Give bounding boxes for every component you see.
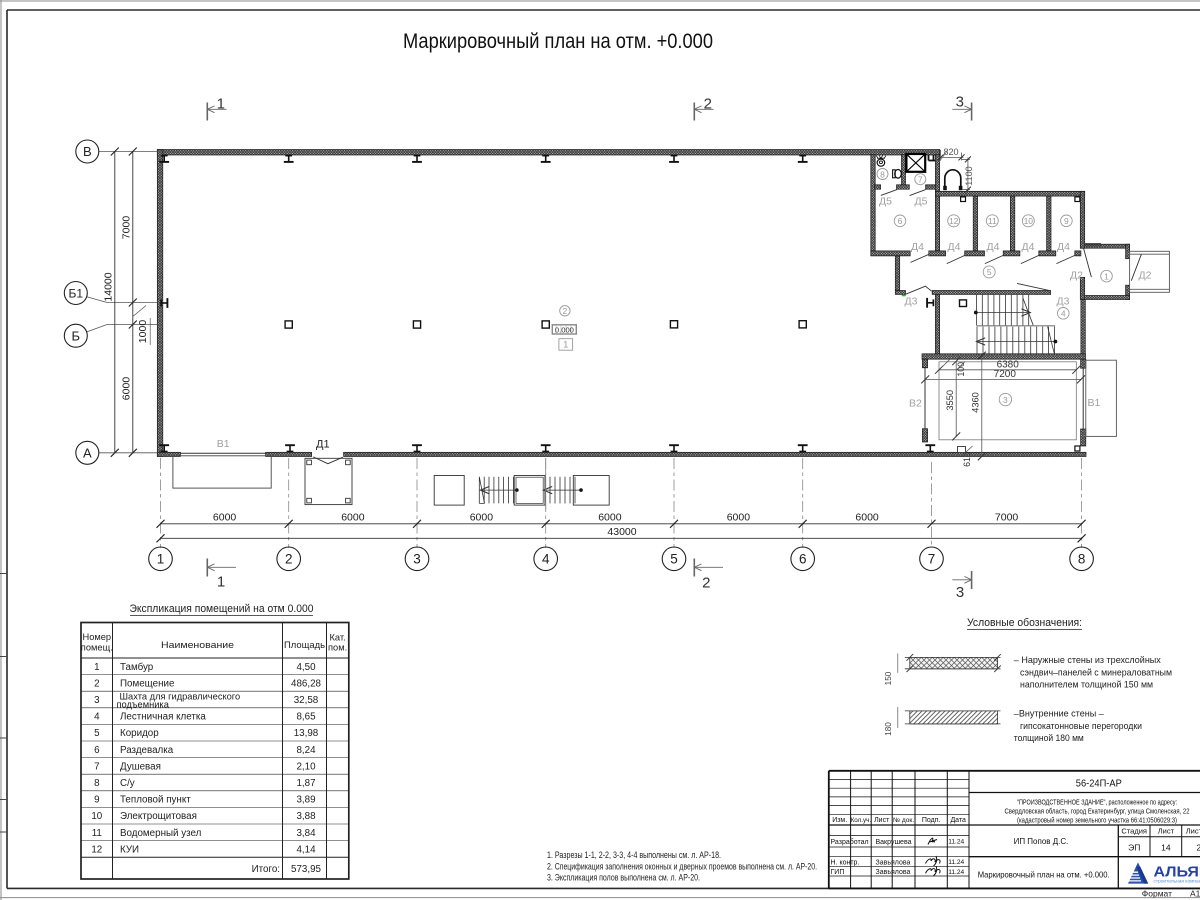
svg-text:ЭП: ЭП — [1128, 842, 1140, 852]
svg-text:4,50: 4,50 — [296, 662, 316, 673]
svg-text:3,89: 3,89 — [296, 795, 315, 806]
svg-text:2: 2 — [94, 678, 99, 689]
svg-text:13,98: 13,98 — [294, 728, 319, 739]
svg-text:2: 2 — [702, 575, 710, 592]
svg-text:гипсокатонновые перегородки: гипсокатонновые перегородки — [1020, 720, 1142, 731]
svg-text:6: 6 — [94, 745, 100, 756]
svg-text:Душевая: Душевая — [120, 761, 161, 772]
svg-text:1,87: 1,87 — [296, 778, 315, 789]
svg-text:8: 8 — [1078, 551, 1086, 566]
svg-text:9: 9 — [1064, 216, 1069, 226]
svg-text:помещ.: помещ. — [81, 643, 113, 653]
svg-text:1: 1 — [1104, 271, 1109, 281]
svg-text:Д4: Д4 — [987, 241, 1000, 253]
svg-text:180: 180 — [884, 722, 893, 736]
svg-text:2: 2 — [563, 306, 568, 316]
svg-text:Помещение: Помещение — [120, 678, 175, 689]
svg-text:Маркировочный план на отм. +0.: Маркировочный план на отм. +0.000 — [403, 30, 713, 53]
svg-text:7200: 7200 — [994, 369, 1017, 380]
svg-text:ГИП: ГИП — [831, 869, 845, 876]
svg-text:4: 4 — [1061, 309, 1066, 319]
svg-text:12: 12 — [91, 844, 102, 855]
svg-text:Экспликация помещений на отм 0: Экспликация помещений на отм 0.000 — [130, 603, 314, 615]
svg-text:5: 5 — [987, 267, 992, 277]
svg-text:Тепловой пункт: Тепловой пункт — [120, 795, 191, 806]
svg-text:3: 3 — [1003, 395, 1008, 405]
svg-text:Завьялова: Завьялова — [876, 860, 911, 867]
svg-text:3: 3 — [94, 695, 100, 706]
svg-text:6000: 6000 — [598, 512, 622, 524]
svg-text:2. Спецификация заполнения око: 2. Спецификация заполнения оконных и две… — [547, 862, 817, 872]
svg-text:Разработал: Разработал — [831, 838, 869, 846]
svg-text:Маркировочный план на отм. +0.: Маркировочный план на отм. +0.000. — [978, 870, 1110, 879]
svg-text:Лист: Лист — [1158, 826, 1175, 835]
svg-text:Н. контр.: Н. контр. — [831, 860, 860, 867]
svg-text:43000: 43000 — [607, 526, 636, 538]
svg-text:14: 14 — [1161, 842, 1171, 852]
svg-text:Лист: Лист — [874, 817, 890, 824]
svg-text:6000: 6000 — [727, 512, 751, 524]
svg-text:В1: В1 — [217, 438, 230, 450]
svg-text:АЛЬЯН: АЛЬЯН — [1154, 864, 1200, 880]
svg-text:4: 4 — [94, 712, 100, 723]
svg-text:Площадь: Площадь — [284, 640, 325, 650]
svg-text:Коридор: Коридор — [120, 728, 159, 739]
svg-text:подъемника: подъемника — [117, 700, 170, 710]
svg-text:Изм.: Изм. — [832, 817, 847, 824]
svg-text:150: 150 — [884, 671, 893, 685]
svg-text:7: 7 — [928, 551, 936, 566]
svg-text:2: 2 — [1197, 842, 1200, 852]
svg-text:7: 7 — [918, 175, 923, 185]
svg-text:610: 610 — [962, 452, 972, 467]
svg-text:Листов: Листов — [1186, 826, 1200, 835]
svg-text:Стадия: Стадия — [1121, 826, 1147, 835]
svg-text:7: 7 — [94, 761, 99, 772]
svg-text:Д4: Д4 — [911, 241, 924, 253]
svg-text:4360: 4360 — [971, 392, 981, 413]
svg-text:3,88: 3,88 — [296, 811, 316, 822]
svg-text:КУИ: КУИ — [120, 844, 139, 855]
svg-text:3: 3 — [956, 584, 964, 601]
svg-text:10: 10 — [91, 811, 102, 822]
svg-text:1000: 1000 — [137, 320, 149, 344]
svg-text:6000: 6000 — [470, 512, 494, 524]
svg-text:3,84: 3,84 — [296, 828, 316, 839]
svg-text:9: 9 — [94, 795, 99, 806]
svg-text:11.24: 11.24 — [948, 869, 964, 876]
svg-text:Д4: Д4 — [1057, 241, 1070, 253]
svg-text:Дата: Дата — [950, 817, 966, 824]
svg-text:8,65: 8,65 — [296, 712, 316, 723]
svg-text:1: 1 — [217, 574, 225, 591]
svg-text:пом.: пом. — [328, 643, 347, 653]
svg-text:Д2: Д2 — [1070, 270, 1083, 282]
svg-text:Кол.уч.: Кол.уч. — [851, 817, 872, 824]
svg-text:2: 2 — [285, 551, 293, 566]
svg-text:8: 8 — [880, 169, 885, 179]
svg-text:8: 8 — [94, 778, 100, 789]
svg-text:Б: Б — [72, 328, 81, 343]
svg-text:В: В — [83, 144, 92, 159]
svg-text:12: 12 — [949, 216, 959, 226]
svg-text:сэндвич–панелей с минераловатн: сэндвич–панелей с минераловатным — [1020, 666, 1172, 677]
svg-text:Подп.: Подп. — [922, 817, 941, 824]
svg-text:5: 5 — [94, 728, 100, 739]
svg-text:6: 6 — [898, 216, 903, 226]
svg-text:Лестничная клетка: Лестничная клетка — [120, 712, 206, 723]
svg-text:В2: В2 — [909, 398, 922, 410]
svg-text:820: 820 — [943, 147, 958, 157]
svg-text:11: 11 — [92, 828, 102, 839]
svg-text:С/у: С/у — [120, 778, 135, 789]
svg-text:строительная компания: строительная компания — [1154, 880, 1200, 885]
svg-text:ИП Попов Д.С.: ИП Попов Д.С. — [1014, 837, 1069, 846]
svg-text:Электрощитовая: Электрощитовая — [120, 811, 197, 822]
svg-text:Водомерный узел: Водомерный узел — [120, 828, 202, 839]
svg-text:56-24П-АР: 56-24П-АР — [1076, 778, 1122, 790]
svg-text:наполнителем толщиной 150 мм: наполнителем толщиной 150 мм — [1020, 679, 1153, 690]
svg-text:100: 100 — [956, 362, 966, 377]
svg-text:Д3: Д3 — [905, 296, 918, 308]
svg-text:Номер: Номер — [82, 632, 111, 642]
svg-text:Формат: Формат — [1142, 889, 1172, 899]
svg-text:6: 6 — [799, 551, 807, 566]
svg-text:8,24: 8,24 — [296, 745, 316, 756]
svg-text:А: А — [83, 446, 92, 461]
svg-text:Б1: Б1 — [69, 287, 84, 301]
svg-text:14000: 14000 — [102, 272, 114, 301]
svg-text:32,58: 32,58 — [294, 695, 319, 706]
svg-text:11.24: 11.24 — [948, 859, 964, 866]
svg-text:Тамбур: Тамбур — [120, 662, 154, 673]
svg-text:–Внутренние стены –: –Внутренние стены – — [1014, 708, 1105, 719]
svg-text:В1: В1 — [1088, 397, 1101, 409]
svg-text:Свердловская область, город Ек: Свердловская область, город Екатеринбург… — [1005, 807, 1190, 816]
svg-text:10: 10 — [1024, 216, 1034, 226]
svg-text:"ПРОИЗВОДСТВЕННОЕ ЗДАНИЕ", рас: "ПРОИЗВОДСТВЕННОЕ ЗДАНИЕ", расположенное… — [1017, 798, 1177, 807]
svg-text:6000: 6000 — [213, 512, 237, 524]
svg-text:1: 1 — [563, 340, 568, 350]
svg-text:3: 3 — [413, 551, 421, 566]
svg-text:Д1: Д1 — [316, 439, 330, 451]
svg-text:Завьялова: Завьялова — [876, 869, 911, 876]
svg-text:7000: 7000 — [120, 216, 132, 240]
svg-text:486,28: 486,28 — [291, 678, 322, 689]
svg-text:1. Разрезы 1-1, 2-2, 3-3, 4-4: 1. Разрезы 1-1, 2-2, 3-3, 4-4 выполнены … — [547, 850, 721, 860]
svg-text:4,14: 4,14 — [296, 844, 316, 855]
svg-text:6000: 6000 — [341, 512, 365, 524]
svg-text:Кат.: Кат. — [329, 633, 345, 643]
svg-text:Д4: Д4 — [1022, 241, 1035, 253]
svg-text:5: 5 — [670, 551, 678, 566]
svg-text:6000: 6000 — [855, 512, 879, 524]
svg-text:1: 1 — [217, 96, 225, 113]
svg-text:Вакрушева: Вакрушева — [876, 839, 912, 846]
svg-text:(кадастровый номер земельного: (кадастровый номер земельного участка 66… — [1017, 816, 1177, 825]
svg-text:4: 4 — [542, 551, 550, 566]
svg-text:3: 3 — [956, 94, 964, 111]
svg-text:толщиной 180 мм: толщиной 180 мм — [1014, 732, 1084, 743]
svg-text:Д3: Д3 — [1057, 296, 1070, 308]
svg-text:7000: 7000 — [995, 512, 1019, 524]
svg-text:Раздевалка: Раздевалка — [120, 745, 174, 756]
svg-text:3550: 3550 — [945, 390, 955, 411]
svg-text:Д4: Д4 — [948, 241, 961, 253]
svg-text:Итого:: Итого: — [252, 864, 280, 875]
svg-text:3. Экспликация полов выполнена: 3. Экспликация полов выполнена см. л. АР… — [547, 873, 700, 883]
svg-text:№ док.: № док. — [893, 817, 914, 824]
svg-text:6000: 6000 — [120, 377, 132, 401]
svg-text:1: 1 — [157, 551, 165, 566]
svg-text:– Наружные стены из трехслойны: – Наружные стены из трехслойных — [1014, 654, 1161, 665]
svg-text:Д2: Д2 — [1139, 270, 1152, 282]
svg-text:573,95: 573,95 — [291, 864, 322, 875]
svg-text:2,10: 2,10 — [296, 761, 316, 772]
svg-text:Д5: Д5 — [915, 196, 928, 208]
svg-text:Д5: Д5 — [879, 196, 892, 208]
svg-text:Условные обозначения:: Условные обозначения: — [967, 617, 1082, 629]
svg-text:Наименование: Наименование — [161, 640, 234, 650]
svg-text:11: 11 — [988, 216, 997, 226]
svg-text:1: 1 — [94, 662, 99, 673]
svg-text:1100: 1100 — [964, 166, 974, 185]
svg-text:2: 2 — [704, 96, 712, 113]
svg-text:11.24: 11.24 — [948, 838, 964, 845]
svg-text:А1: А1 — [1190, 889, 1200, 899]
svg-text:0.000: 0.000 — [555, 325, 574, 334]
